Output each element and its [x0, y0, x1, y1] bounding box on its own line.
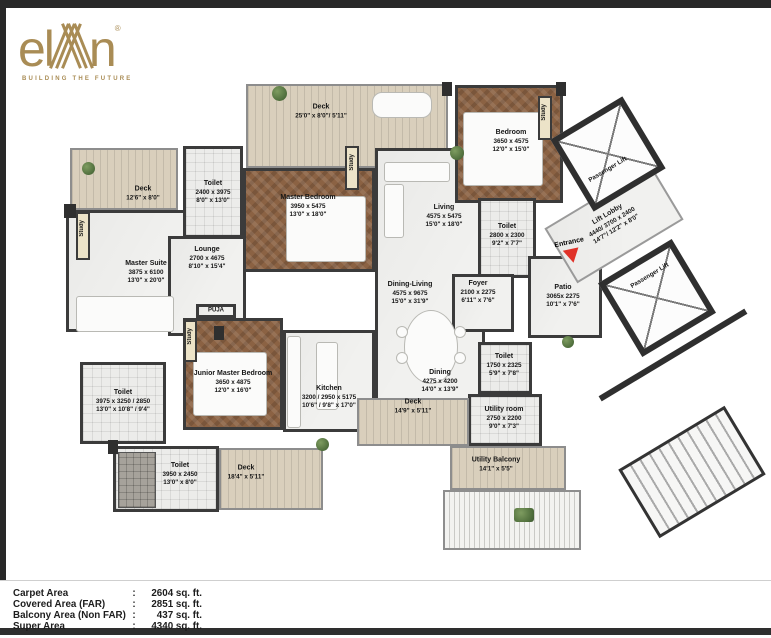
label-deck-bottom: Deck 18'4" x 5'11" [228, 465, 265, 482]
room-dim: 3200 / 2950 x 5175 [302, 394, 356, 402]
label-deck-mid: Deck 14'9" x 5'11" [395, 399, 432, 416]
kitchen-counter-graphic [287, 336, 301, 428]
chair-graphic [396, 326, 408, 338]
label-toilet-bottom: Toilet 3950 x 2450 13'0" x 8'0" [162, 462, 197, 486]
label-study-suite: Study [79, 220, 85, 237]
area-separator: : [128, 610, 140, 621]
plant-icon [562, 336, 574, 348]
label-utility-balcony: Utility Balcony 14'1" x 5'5" [472, 457, 521, 474]
room-dim: 5'9" x 7'8" [486, 369, 521, 377]
room-name: Junior Master Bedroom [194, 370, 273, 379]
area-label: Super Area [13, 621, 128, 632]
room-name: Living [426, 204, 463, 213]
label-toilet-mid: Toilet 2800 x 2300 9'2" x 7'7" [489, 223, 524, 247]
deck-sofa-graphic [372, 92, 432, 118]
room-dim: 3950 x 5475 [280, 203, 335, 211]
area-separator: : [128, 588, 140, 599]
floorplan-page: el n ® BUILDING THE FUTURE [0, 0, 771, 638]
room-name: Utility Balcony [472, 457, 521, 466]
logo-a-slashes-icon [53, 24, 89, 66]
label-foyer: Foyer 2100 x 2275 6'11" x 7'6" [460, 280, 495, 304]
area-value: 2851 sq. ft. [140, 599, 202, 610]
bed-graphic [76, 296, 174, 332]
label-study-junior: Study [187, 328, 193, 345]
shower-area [118, 452, 156, 508]
room-dim: 2750 x 2200 [485, 415, 524, 423]
label-toilet-right: Toilet 1750 x 2325 5'9" x 7'8" [486, 353, 521, 377]
registered-mark: ® [115, 24, 121, 33]
label-kitchen: Kitchen 3200 / 2950 x 5175 10'6" / 9'8" … [302, 385, 356, 409]
room-dim: 3950 x 2450 [162, 471, 197, 479]
label-master-suite: Master Suite 3875 x 6100 13'0" x 20'0" [125, 260, 167, 284]
chair-graphic [396, 352, 408, 364]
label-patio: Patio 3065x 2275 10'1" x 7'6" [546, 284, 579, 308]
room-dim: 12'0" x 15'0" [493, 145, 530, 153]
wall-segment [214, 326, 224, 340]
room-dim: 14'0" x 13'9" [422, 385, 459, 393]
chair-graphic [454, 326, 466, 338]
table-divider-line [0, 580, 771, 581]
room-name: Foyer [460, 280, 495, 289]
table-row: Carpet Area : 2604 sq. ft. [13, 588, 202, 599]
table-row: Super Area : 4340 sq. ft. [13, 621, 202, 632]
room-name: Toilet [195, 180, 230, 189]
label-dining: Dining 4275 x 4200 14'0" x 13'9" [422, 369, 459, 393]
room-dim: 3650 x 4875 [194, 379, 273, 387]
plant-icon [82, 162, 95, 175]
room-name: Toilet [96, 389, 150, 398]
table-row: Covered Area (FAR) : 2851 sq. ft. [13, 599, 202, 610]
room-dim: 14'1" x 5'5" [472, 465, 521, 473]
room-dim: 3650 x 4575 [493, 138, 530, 146]
room-name: Toilet [162, 462, 197, 471]
area-value: 2604 sq. ft. [140, 588, 202, 599]
room-dim: 12'6" x 8'0" [126, 194, 159, 202]
area-label: Carpet Area [13, 588, 128, 599]
planter-box-icon [514, 508, 534, 522]
area-separator: : [128, 599, 140, 610]
room-dim: 15'0" x 18'0" [426, 220, 463, 228]
room-name: Utility room [485, 406, 524, 415]
logo-text-el: el [18, 24, 53, 74]
label-utility-room: Utility room 2750 x 2200 9'0" x 7'3" [485, 406, 524, 430]
room-dim: 2800 x 2300 [489, 232, 524, 240]
room-dim: 3065x 2275 [546, 293, 579, 301]
room-name: Deck [126, 186, 159, 195]
brand-logo: el n ® BUILDING THE FUTURE [18, 24, 132, 82]
area-separator: : [128, 621, 140, 632]
sofa-graphic [384, 162, 450, 182]
label-living: Living 4575 x 5475 15'0" x 18'0" [426, 204, 463, 228]
room-name: Deck [295, 104, 347, 113]
room-dim: 3975 x 3250 / 2850 [96, 398, 150, 406]
room-name: Deck [395, 399, 432, 408]
room-dim: 2400 x 3975 [195, 189, 230, 197]
room-name: Bedroom [493, 129, 530, 138]
label-lounge: Lounge 2700 x 4675 8'10" x 15'4" [189, 246, 226, 270]
plant-icon [450, 146, 464, 160]
room-name: Patio [546, 284, 579, 293]
room-name: PUJA [208, 307, 224, 315]
room-dim: 13'0" x 10'8" / 9'4" [96, 405, 150, 413]
room-dim: 9'0" x 7'3" [485, 422, 524, 430]
top-border-bar [0, 0, 771, 8]
plant-icon [316, 438, 329, 451]
room-name: Master Suite [125, 260, 167, 269]
label-study-master: Study [349, 154, 355, 171]
wall-segment [556, 82, 566, 96]
room-dim: 4575 x 5475 [426, 213, 463, 221]
room-dim: 2700 x 4675 [189, 255, 226, 263]
room-dim: 9'2" x 7'7" [489, 239, 524, 247]
left-border-bar [0, 0, 6, 580]
chair-graphic [454, 352, 466, 364]
room-dim: 13'0" x 20'0" [125, 276, 167, 284]
room-dim: 2100 x 2275 [460, 289, 495, 297]
wall-segment [108, 440, 118, 454]
wall-segment [442, 82, 452, 96]
room-name: Deck [228, 465, 265, 474]
label-study-bedroom: Study [541, 104, 547, 121]
label-deck-top: Deck 25'0" x 8'0"/ 5'11" [295, 104, 347, 121]
label-deck-left: Deck 12'6" x 8'0" [126, 186, 159, 203]
room-dim: 25'0" x 8'0"/ 5'11" [295, 112, 347, 120]
area-label: Balcony Area (Non FAR) [13, 610, 128, 621]
room-name: Toilet [489, 223, 524, 232]
area-value: 437 sq. ft. [140, 610, 202, 621]
room-name: Dining [422, 369, 459, 378]
room-name: Kitchen [302, 385, 356, 394]
label-puja: PUJA [208, 307, 224, 315]
railing-deck [443, 490, 581, 550]
area-value: 4340 sq. ft. [140, 621, 202, 632]
label-bedroom: Bedroom 3650 x 4575 12'0" x 15'0" [493, 129, 530, 153]
plant-icon [272, 86, 287, 101]
room-dim: 3875 x 6100 [125, 269, 167, 277]
room-dim: 4275 x 4200 [422, 378, 459, 386]
label-master-bedroom: Master Bedroom 3950 x 5475 13'0" x 18'0" [280, 194, 335, 218]
label-dining-living: Dining-Living 4575 x 9675 15'0" x 31'9" [388, 281, 433, 305]
room-deck-left [70, 148, 178, 210]
room-dim: 10'1" x 7'6" [546, 300, 579, 308]
table-row: Balcony Area (Non FAR) : 437 sq. ft. [13, 610, 202, 621]
room-dim: 14'9" x 5'11" [395, 407, 432, 415]
room-name: Dining-Living [388, 281, 433, 290]
room-dim: 15'0" x 31'9" [388, 297, 433, 305]
room-dim: 8'0" x 13'0" [195, 196, 230, 204]
room-dim: 13'0" x 8'0" [162, 478, 197, 486]
room-dim: 18'4" x 5'11" [228, 473, 265, 481]
room-dim: 8'10" x 15'4" [189, 262, 226, 270]
staircase [618, 406, 765, 538]
room-dim: 10'6" / 9'8" x 17'0" [302, 401, 356, 409]
sofa-graphic [384, 184, 404, 238]
label-toilet-suite: Toilet 3975 x 3250 / 2850 13'0" x 10'8" … [96, 389, 150, 413]
room-dim: 12'0" x 16'0" [194, 386, 273, 394]
room-name: Lounge [189, 246, 226, 255]
area-label: Covered Area (FAR) [13, 599, 128, 610]
room-name: Toilet [486, 353, 521, 362]
room-dim: 4575 x 9675 [388, 290, 433, 298]
wall-segment [64, 204, 76, 218]
label-toilet-top: Toilet 2400 x 3975 8'0" x 13'0" [195, 180, 230, 204]
label-junior-master-bedroom: Junior Master Bedroom 3650 x 4875 12'0" … [194, 370, 273, 394]
room-name: Master Bedroom [280, 194, 335, 203]
room-dim: 13'0" x 18'0" [280, 210, 335, 218]
brand-tagline: BUILDING THE FUTURE [22, 76, 132, 82]
room-dim: 1750 x 2325 [486, 362, 521, 370]
room-dim: 6'11" x 7'6" [460, 296, 495, 304]
